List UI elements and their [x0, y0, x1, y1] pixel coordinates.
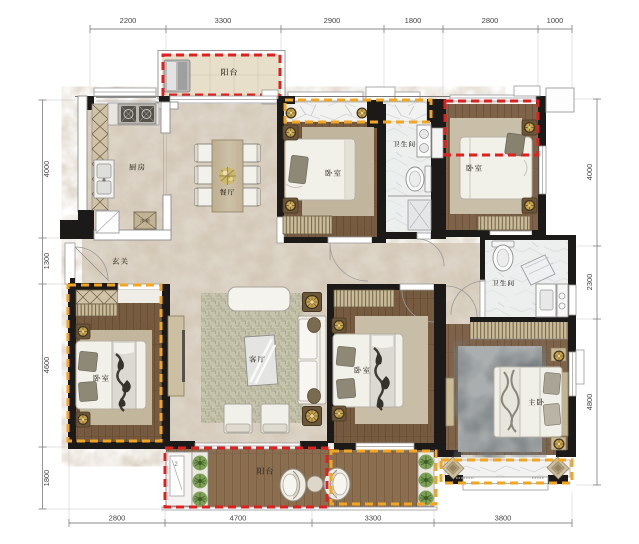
svg-text:3300: 3300 — [365, 514, 382, 523]
svg-text:4700: 4700 — [230, 514, 247, 523]
svg-text:1800: 1800 — [42, 470, 51, 487]
svg-text:2900: 2900 — [324, 16, 341, 25]
svg-text:2800: 2800 — [482, 16, 499, 25]
svg-text:2800: 2800 — [109, 514, 126, 523]
svg-text:2200: 2200 — [120, 16, 137, 25]
svg-text:4600: 4600 — [42, 357, 51, 374]
svg-text:4000: 4000 — [42, 161, 51, 178]
svg-text:3300: 3300 — [215, 16, 232, 25]
svg-text:3800: 3800 — [495, 514, 512, 523]
svg-text:1800: 1800 — [405, 16, 422, 25]
svg-text:4800: 4800 — [585, 394, 594, 411]
svg-text:1000: 1000 — [547, 16, 564, 25]
svg-text:4000: 4000 — [585, 164, 594, 181]
svg-text:2300: 2300 — [585, 274, 594, 291]
svg-text:1300: 1300 — [42, 253, 51, 270]
